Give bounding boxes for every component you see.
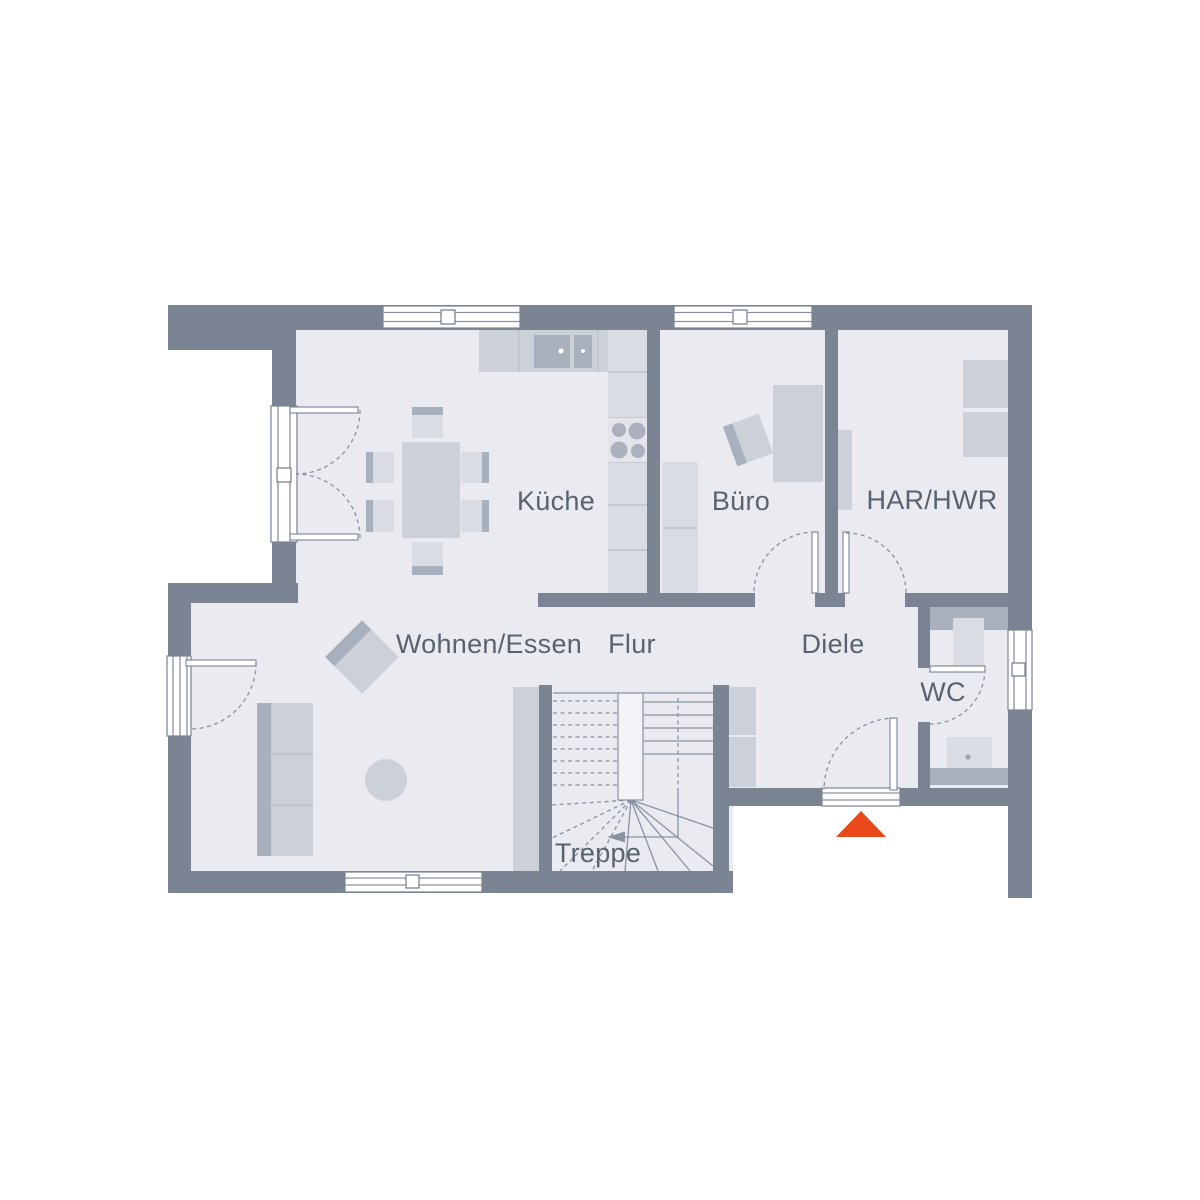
wall-diele-bottom <box>728 788 822 806</box>
wall-stair-left <box>539 685 552 871</box>
hall-cabinet <box>729 687 756 735</box>
window-dining <box>383 306 520 328</box>
toilet-flush-dot <box>965 754 970 759</box>
washer <box>963 360 1010 408</box>
sink-faucet-dot <box>558 348 563 353</box>
dining-chair <box>366 452 373 483</box>
wall-kueche-flur <box>538 593 755 607</box>
wall-wc-bottom <box>900 788 1032 806</box>
wall-left-upper <box>168 603 191 656</box>
dining-chair <box>461 500 482 532</box>
burner-icon <box>611 442 628 459</box>
dining-chair <box>366 500 373 532</box>
har-cabinet <box>838 430 852 510</box>
stair-side-strip <box>513 687 539 871</box>
window-wc <box>1008 630 1032 710</box>
desk <box>773 385 823 482</box>
sofa <box>257 703 271 856</box>
dining-table <box>402 442 460 538</box>
dining-chair <box>461 452 482 483</box>
room-label-diele: Diele <box>801 629 864 659</box>
wc-shelf <box>928 768 1010 785</box>
wc-basin <box>953 618 984 668</box>
dining-chair <box>412 542 443 566</box>
burner-icon <box>631 444 645 458</box>
burner-icon <box>612 423 626 437</box>
wall-top <box>168 305 1032 330</box>
room-label-kueche: Küche <box>517 486 595 516</box>
kitchen-sink <box>534 335 570 368</box>
burner-icon <box>629 423 646 440</box>
wall-wc-lower <box>918 722 930 788</box>
side-table <box>365 759 407 801</box>
dining-chair <box>412 407 443 415</box>
room-label-wohnen-essen: Wohnen/Essen <box>396 629 582 659</box>
wall-kueche-buero <box>647 325 660 593</box>
wall-buero-har <box>825 325 838 593</box>
entrance-triangle-icon <box>836 811 886 837</box>
room-label-flur: Flur <box>608 629 656 659</box>
toilet <box>947 737 992 768</box>
room-label-har-hwr: HAR/HWR <box>866 485 997 515</box>
wall-left-step-block <box>168 583 298 603</box>
wall-right <box>1008 305 1032 898</box>
stair-newel-void <box>618 693 643 800</box>
room-label-treppe: Treppe <box>555 838 641 868</box>
wall-wc-upper <box>918 603 930 668</box>
wall-left-lower <box>168 736 191 871</box>
floor-plan-canvas: Küche Büro HAR/HWR Wohnen/Essen Flur Die… <box>0 0 1200 1200</box>
hall-cabinet <box>729 737 756 787</box>
room-label-buero: Büro <box>712 486 770 516</box>
wall-stair-right <box>713 685 729 871</box>
room-label-wc: WC <box>920 677 966 707</box>
dryer <box>963 412 1008 457</box>
window-living <box>345 872 482 892</box>
window-buero <box>674 306 812 328</box>
wall-door-stub <box>815 593 845 607</box>
